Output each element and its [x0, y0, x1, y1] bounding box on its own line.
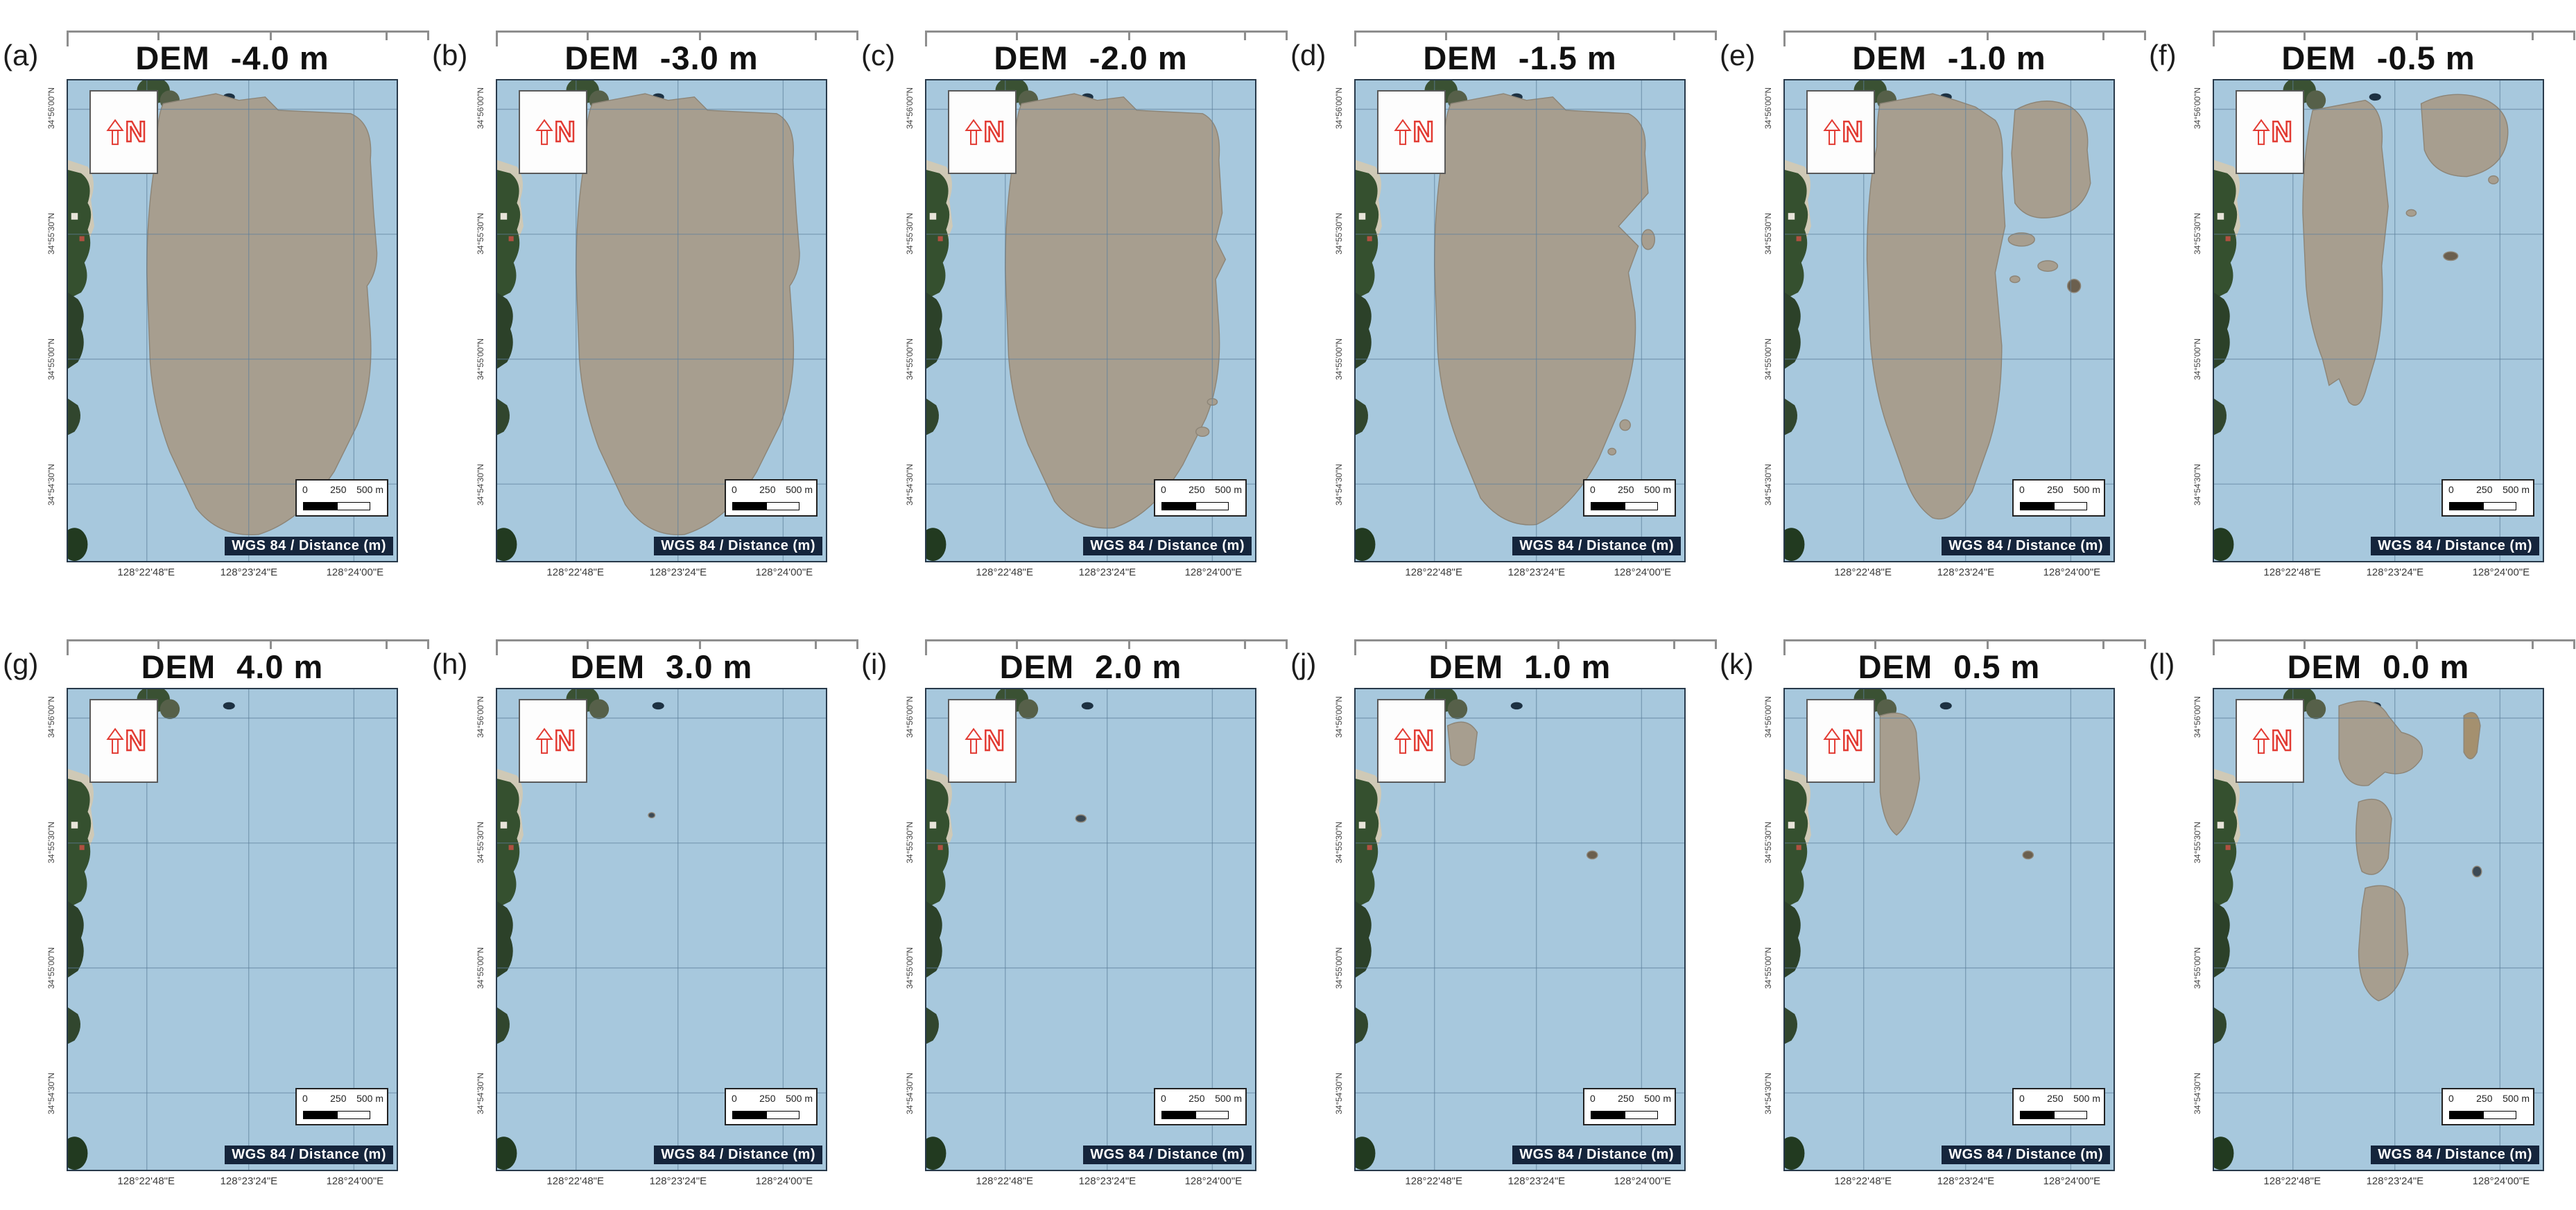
lon-tick-label: 128°24'00"E	[2473, 567, 2530, 578]
top-ruler	[67, 639, 429, 641]
dem-label: DEM	[1852, 39, 1926, 77]
scale-tick-250: 250	[2047, 484, 2063, 495]
lat-tick-label: 34°55'00"N	[2193, 947, 2202, 989]
scale-tick-250: 250	[759, 1093, 775, 1104]
top-ruler	[67, 31, 429, 33]
scale-bar-segments	[2020, 1111, 2087, 1119]
dem-label: DEM	[1000, 648, 1074, 686]
scale-bar: 0 250 500 m	[295, 479, 388, 517]
panel-title: DEM -0.5 m	[2213, 39, 2544, 77]
north-label: N	[983, 726, 1004, 755]
map-canvas: N 0 250 500 m WGS 84 / Distance (m)	[1354, 79, 1686, 562]
lat-tick-label: 34°55'00"N	[476, 947, 485, 989]
scale-bar: 0 250 500 m	[725, 1088, 818, 1125]
lat-tick-label: 34°54'30"N	[1334, 1073, 1344, 1114]
crs-label: WGS 84 / Distance (m)	[1942, 537, 2110, 555]
lat-tick-label: 34°56'00"N	[1763, 87, 1773, 129]
map-canvas: N 0 250 500 m WGS 84 / Distance (m)	[496, 688, 827, 1171]
lat-tick-label: 34°55'30"N	[2193, 822, 2202, 863]
scale-tick-250: 250	[1618, 1093, 1634, 1104]
scale-bar: 0 250 500 m	[295, 1088, 388, 1125]
lon-tick-label: 128°22'48"E	[2263, 1175, 2321, 1187]
panel-letter: (i)	[861, 648, 887, 681]
scale-tick-250: 250	[2476, 484, 2492, 495]
panel-letter: (c)	[861, 39, 895, 72]
panel-letter: (b)	[432, 39, 467, 72]
lon-tick-label: 128°22'48"E	[1834, 567, 1892, 578]
north-arrow-box: N	[2236, 90, 2305, 174]
map-panel: (d) DEM -1.5 m N 0 250 500 m WGS 84 / Di…	[1288, 15, 1717, 601]
scale-bar: 0 250 500 m	[1583, 479, 1676, 517]
lon-tick-label: 128°22'48"E	[976, 567, 1033, 578]
dem-label: DEM	[1429, 648, 1503, 686]
elevation-value: -1.5 m	[1519, 39, 1617, 77]
crs-label: WGS 84 / Distance (m)	[225, 537, 393, 555]
top-ruler	[1354, 639, 1717, 641]
panel-letter: (h)	[432, 648, 467, 681]
crs-label: WGS 84 / Distance (m)	[2371, 537, 2539, 555]
panel-letter: (l)	[2149, 648, 2175, 681]
north-label: N	[2271, 726, 2292, 755]
map-panel: (e) DEM -1.0 m N 0 250 500 m WGS 84 / Di…	[1717, 15, 2146, 601]
elevation-value: 3.0 m	[666, 648, 752, 686]
lon-tick-label: 128°24'00"E	[756, 567, 813, 578]
top-ruler	[2213, 639, 2575, 641]
north-arrow-box: N	[948, 90, 1017, 174]
map-canvas: N 0 250 500 m WGS 84 / Distance (m)	[1783, 688, 2115, 1171]
panel-letter: (a)	[3, 39, 38, 72]
crs-label: WGS 84 / Distance (m)	[1512, 1146, 1681, 1164]
elevation-value: -1.0 m	[1948, 39, 2046, 77]
lat-tick-label: 34°55'30"N	[1763, 822, 1773, 863]
scale-bar: 0 250 500 m	[1154, 479, 1247, 517]
scale-tick-0: 0	[2448, 484, 2454, 495]
scale-tick-0: 0	[1590, 1093, 1596, 1104]
lat-tick-label: 34°54'30"N	[46, 1073, 56, 1114]
scale-bar: 0 250 500 m	[2441, 1088, 2534, 1125]
panel-title: DEM -1.5 m	[1354, 39, 1686, 77]
lat-tick-label: 34°55'30"N	[1763, 213, 1773, 254]
panel-title: DEM 3.0 m	[496, 648, 827, 686]
scale-bar-segments	[2449, 502, 2516, 510]
scale-tick-0: 0	[2019, 1093, 2025, 1104]
lat-tick-label: 34°55'30"N	[1334, 213, 1344, 254]
lat-tick-label: 34°55'00"N	[476, 338, 485, 380]
panel-title: DEM 0.5 m	[1783, 648, 2115, 686]
north-label: N	[2271, 117, 2292, 146]
scale-tick-500: 500 m	[786, 1093, 813, 1104]
lat-tick-label: 34°54'30"N	[46, 464, 56, 505]
scale-tick-250: 250	[759, 484, 775, 495]
scale-bar: 0 250 500 m	[1154, 1088, 1247, 1125]
scale-bar-segments	[1591, 502, 1658, 510]
lon-tick-label: 128°24'00"E	[327, 1175, 384, 1187]
top-ruler	[1354, 31, 1717, 33]
panel-title: DEM 4.0 m	[67, 648, 398, 686]
dem-label: DEM	[2281, 39, 2355, 77]
crs-label: WGS 84 / Distance (m)	[2371, 1146, 2539, 1164]
elevation-value: -2.0 m	[1089, 39, 1188, 77]
lat-tick-label: 34°54'30"N	[2193, 464, 2202, 505]
map-canvas: N 0 250 500 m WGS 84 / Distance (m)	[925, 79, 1256, 562]
dem-label: DEM	[141, 648, 216, 686]
lon-tick-label: 128°24'00"E	[2473, 1175, 2530, 1187]
lon-tick-label: 128°22'48"E	[1834, 1175, 1892, 1187]
north-label: N	[125, 726, 146, 755]
scale-bar-segments	[732, 502, 799, 510]
lat-tick-label: 34°54'30"N	[476, 1073, 485, 1114]
dem-label: DEM	[1423, 39, 1497, 77]
lon-tick-label: 128°23'24"E	[1937, 1175, 1995, 1187]
map-canvas: N 0 250 500 m WGS 84 / Distance (m)	[925, 688, 1256, 1171]
scale-tick-500: 500 m	[356, 484, 383, 495]
panel-title: DEM 1.0 m	[1354, 648, 1686, 686]
north-label: N	[983, 117, 1004, 146]
crs-label: WGS 84 / Distance (m)	[225, 1146, 393, 1164]
north-label: N	[125, 117, 146, 146]
north-label: N	[554, 726, 575, 755]
lat-tick-label: 34°55'00"N	[1334, 338, 1344, 380]
map-panel: (b) DEM -3.0 m N 0 250 500 m WGS 84 / Di…	[429, 15, 858, 601]
north-label: N	[1842, 726, 1862, 755]
elevation-value: 0.5 m	[1953, 648, 2040, 686]
lat-tick-label: 34°56'00"N	[1763, 696, 1773, 738]
lat-tick-label: 34°55'30"N	[2193, 213, 2202, 254]
lat-tick-label: 34°54'30"N	[2193, 1073, 2202, 1114]
lat-tick-label: 34°54'30"N	[1763, 464, 1773, 505]
scale-tick-250: 250	[1618, 484, 1634, 495]
north-arrow-box: N	[2236, 699, 2305, 783]
north-arrow-box: N	[89, 699, 159, 783]
lon-tick-label: 128°22'48"E	[976, 1175, 1033, 1187]
map-canvas: N 0 250 500 m WGS 84 / Distance (m)	[67, 688, 398, 1171]
crs-label: WGS 84 / Distance (m)	[1512, 537, 1681, 555]
scale-tick-250: 250	[330, 484, 346, 495]
lat-tick-label: 34°56'00"N	[1334, 87, 1344, 129]
scale-bar-segments	[1161, 1111, 1229, 1119]
lat-tick-label: 34°54'30"N	[1334, 464, 1344, 505]
lon-tick-label: 128°23'24"E	[2367, 1175, 2424, 1187]
lat-tick-label: 34°56'00"N	[905, 696, 915, 738]
lon-tick-label: 128°23'24"E	[650, 1175, 707, 1187]
scale-tick-0: 0	[732, 484, 737, 495]
lon-tick-label: 128°24'00"E	[327, 567, 384, 578]
scale-tick-250: 250	[1188, 484, 1204, 495]
panel-letter: (g)	[3, 648, 38, 681]
map-panel: (i) DEM 2.0 m N 0 250 500 m WGS 84 / Dis…	[858, 624, 1288, 1210]
north-label: N	[1412, 726, 1433, 755]
panel-title: DEM 0.0 m	[2213, 648, 2544, 686]
lat-tick-label: 34°55'30"N	[46, 213, 56, 254]
scale-bar-segments	[1161, 502, 1229, 510]
lat-tick-label: 34°56'00"N	[905, 87, 915, 129]
panel-title: DEM -2.0 m	[925, 39, 1256, 77]
scale-bar-segments	[303, 502, 370, 510]
map-panel: (a) DEM -4.0 m N 0 250 500 m WGS 84 / Di…	[0, 15, 429, 601]
north-arrow-box: N	[948, 699, 1017, 783]
scale-tick-0: 0	[1161, 484, 1166, 495]
lon-tick-label: 128°23'24"E	[1508, 1175, 1566, 1187]
scale-bar-segments	[2449, 1111, 2516, 1119]
lon-tick-label: 128°23'24"E	[1079, 567, 1136, 578]
top-ruler	[1783, 31, 2146, 33]
scale-tick-250: 250	[1188, 1093, 1204, 1104]
scale-tick-0: 0	[2448, 1093, 2454, 1104]
lon-tick-label: 128°22'48"E	[1405, 1175, 1462, 1187]
lon-tick-label: 128°22'48"E	[117, 567, 175, 578]
map-panel: (f) DEM -0.5 m N 0 250 500 m WGS 84 / Di…	[2146, 15, 2575, 601]
lat-tick-label: 34°54'30"N	[476, 464, 485, 505]
lon-tick-label: 128°22'48"E	[1405, 567, 1462, 578]
lon-tick-label: 128°23'24"E	[221, 1175, 278, 1187]
north-arrow-box: N	[89, 90, 159, 174]
crs-label: WGS 84 / Distance (m)	[1083, 537, 1252, 555]
lat-tick-label: 34°56'00"N	[476, 87, 485, 129]
map-panel: (l) DEM 0.0 m N 0 250 500 m WGS 84 / Dis…	[2146, 624, 2575, 1210]
lon-tick-label: 128°23'24"E	[2367, 567, 2424, 578]
north-label: N	[1842, 117, 1862, 146]
lat-tick-label: 34°55'00"N	[1334, 947, 1344, 989]
panel-letter: (f)	[2149, 39, 2177, 72]
lat-tick-label: 34°54'30"N	[905, 464, 915, 505]
lat-tick-label: 34°55'00"N	[1763, 947, 1773, 989]
elevation-value: -3.0 m	[660, 39, 759, 77]
lon-tick-label: 128°22'48"E	[546, 567, 604, 578]
lat-tick-label: 34°55'30"N	[46, 822, 56, 863]
panel-letter: (j)	[1290, 648, 1316, 681]
scale-bar: 0 250 500 m	[1583, 1088, 1676, 1125]
panel-letter: (k)	[1720, 648, 1754, 681]
scale-tick-0: 0	[732, 1093, 737, 1104]
scale-tick-500: 500 m	[1215, 484, 1242, 495]
scale-tick-500: 500 m	[786, 484, 813, 495]
lon-tick-label: 128°22'48"E	[2263, 567, 2321, 578]
scale-tick-0: 0	[1161, 1093, 1166, 1104]
lon-tick-label: 128°24'00"E	[2043, 567, 2101, 578]
crs-label: WGS 84 / Distance (m)	[654, 537, 822, 555]
map-panel: (j) DEM 1.0 m N 0 250 500 m WGS 84 / Dis…	[1288, 624, 1717, 1210]
lat-tick-label: 34°56'00"N	[2193, 87, 2202, 129]
scale-tick-0: 0	[302, 1093, 308, 1104]
north-arrow-box: N	[1806, 90, 1876, 174]
elevation-value: 1.0 m	[1524, 648, 1611, 686]
crs-label: WGS 84 / Distance (m)	[1942, 1146, 2110, 1164]
panel-title: DEM 2.0 m	[925, 648, 1256, 686]
lat-tick-label: 34°55'30"N	[476, 213, 485, 254]
panel-title: DEM -4.0 m	[67, 39, 398, 77]
scale-tick-0: 0	[2019, 484, 2025, 495]
lat-tick-label: 34°55'30"N	[1334, 822, 1344, 863]
lat-tick-label: 34°56'00"N	[46, 87, 56, 129]
north-label: N	[1412, 117, 1433, 146]
map-panel: (g) DEM 4.0 m N 0 250 500 m WGS 84 / Dis…	[0, 624, 429, 1210]
panel-title: DEM -1.0 m	[1783, 39, 2115, 77]
lon-tick-label: 128°23'24"E	[1508, 567, 1566, 578]
scale-bar-segments	[1591, 1111, 1658, 1119]
scale-bar-segments	[2020, 502, 2087, 510]
scale-bar: 0 250 500 m	[2441, 479, 2534, 517]
map-canvas: N 0 250 500 m WGS 84 / Distance (m)	[2213, 79, 2544, 562]
dem-label: DEM	[2288, 648, 2362, 686]
lon-tick-label: 128°22'48"E	[117, 1175, 175, 1187]
scale-bar: 0 250 500 m	[725, 479, 818, 517]
lat-tick-label: 34°56'00"N	[2193, 696, 2202, 738]
top-ruler	[925, 31, 1288, 33]
scale-tick-500: 500 m	[1215, 1093, 1242, 1104]
scale-bar-segments	[303, 1111, 370, 1119]
lon-tick-label: 128°23'24"E	[1079, 1175, 1136, 1187]
panel-letter: (e)	[1720, 39, 1755, 72]
top-ruler	[2213, 31, 2575, 33]
scale-tick-0: 0	[302, 484, 308, 495]
lat-tick-label: 34°55'30"N	[476, 822, 485, 863]
scale-bar-segments	[732, 1111, 799, 1119]
scale-tick-500: 500 m	[2073, 1093, 2100, 1104]
lon-tick-label: 128°24'00"E	[1614, 1175, 1672, 1187]
lat-tick-label: 34°56'00"N	[46, 696, 56, 738]
panel-title: DEM -3.0 m	[496, 39, 827, 77]
lon-tick-label: 128°23'24"E	[650, 567, 707, 578]
scale-tick-500: 500 m	[356, 1093, 383, 1104]
map-panel: (h) DEM 3.0 m N 0 250 500 m WGS 84 / Dis…	[429, 624, 858, 1210]
north-arrow-box: N	[1806, 699, 1876, 783]
dem-label: DEM	[571, 648, 645, 686]
lon-tick-label: 128°23'24"E	[1937, 567, 1995, 578]
elevation-value: 2.0 m	[1095, 648, 1182, 686]
crs-label: WGS 84 / Distance (m)	[654, 1146, 822, 1164]
scale-tick-250: 250	[2047, 1093, 2063, 1104]
map-panel: (k) DEM 0.5 m N 0 250 500 m WGS 84 / Dis…	[1717, 624, 2146, 1210]
dem-label: DEM	[994, 39, 1068, 77]
elevation-value: -4.0 m	[231, 39, 329, 77]
north-arrow-box: N	[1377, 90, 1446, 174]
lon-tick-label: 128°24'00"E	[756, 1175, 813, 1187]
lon-tick-label: 128°23'24"E	[221, 567, 278, 578]
top-ruler	[925, 639, 1288, 641]
dem-label: DEM	[564, 39, 639, 77]
lat-tick-label: 34°56'00"N	[476, 696, 485, 738]
panel-letter: (d)	[1290, 39, 1326, 72]
lat-tick-label: 34°55'00"N	[46, 338, 56, 380]
scale-tick-500: 500 m	[2502, 484, 2530, 495]
north-arrow-box: N	[1377, 699, 1446, 783]
scale-bar: 0 250 500 m	[2012, 479, 2105, 517]
lon-tick-label: 128°22'48"E	[546, 1175, 604, 1187]
lat-tick-label: 34°55'00"N	[2193, 338, 2202, 380]
dem-label: DEM	[1858, 648, 1933, 686]
north-arrow-box: N	[519, 90, 588, 174]
scale-tick-500: 500 m	[2073, 484, 2100, 495]
lat-tick-label: 34°55'00"N	[1763, 338, 1773, 380]
lat-tick-label: 34°56'00"N	[1334, 696, 1344, 738]
lat-tick-label: 34°55'30"N	[905, 213, 915, 254]
scale-tick-250: 250	[330, 1093, 346, 1104]
map-canvas: N 0 250 500 m WGS 84 / Distance (m)	[2213, 688, 2544, 1171]
lat-tick-label: 34°54'30"N	[905, 1073, 915, 1114]
north-label: N	[554, 117, 575, 146]
map-canvas: N 0 250 500 m WGS 84 / Distance (m)	[67, 79, 398, 562]
scale-tick-500: 500 m	[2502, 1093, 2530, 1104]
scale-tick-500: 500 m	[1644, 484, 1671, 495]
top-ruler	[1783, 639, 2146, 641]
lat-tick-label: 34°55'30"N	[905, 822, 915, 863]
lat-tick-label: 34°55'00"N	[46, 947, 56, 989]
map-canvas: N 0 250 500 m WGS 84 / Distance (m)	[496, 79, 827, 562]
lat-tick-label: 34°55'00"N	[905, 947, 915, 989]
map-canvas: N 0 250 500 m WGS 84 / Distance (m)	[1354, 688, 1686, 1171]
crs-label: WGS 84 / Distance (m)	[1083, 1146, 1252, 1164]
scale-tick-250: 250	[2476, 1093, 2492, 1104]
elevation-value: 4.0 m	[236, 648, 323, 686]
lon-tick-label: 128°24'00"E	[1185, 567, 1243, 578]
lon-tick-label: 128°24'00"E	[1614, 567, 1672, 578]
lon-tick-label: 128°24'00"E	[1185, 1175, 1243, 1187]
top-ruler	[496, 639, 858, 641]
dem-label: DEM	[135, 39, 209, 77]
elevation-value: 0.0 m	[2383, 648, 2469, 686]
elevation-value: -0.5 m	[2377, 39, 2475, 77]
top-ruler	[496, 31, 858, 33]
lat-tick-label: 34°54'30"N	[1763, 1073, 1773, 1114]
scale-tick-0: 0	[1590, 484, 1596, 495]
lat-tick-label: 34°55'00"N	[905, 338, 915, 380]
north-arrow-box: N	[519, 699, 588, 783]
scale-tick-500: 500 m	[1644, 1093, 1671, 1104]
scale-bar: 0 250 500 m	[2012, 1088, 2105, 1125]
map-panel: (c) DEM -2.0 m N 0 250 500 m WGS 84 / Di…	[858, 15, 1288, 601]
map-canvas: N 0 250 500 m WGS 84 / Distance (m)	[1783, 79, 2115, 562]
lon-tick-label: 128°24'00"E	[2043, 1175, 2101, 1187]
